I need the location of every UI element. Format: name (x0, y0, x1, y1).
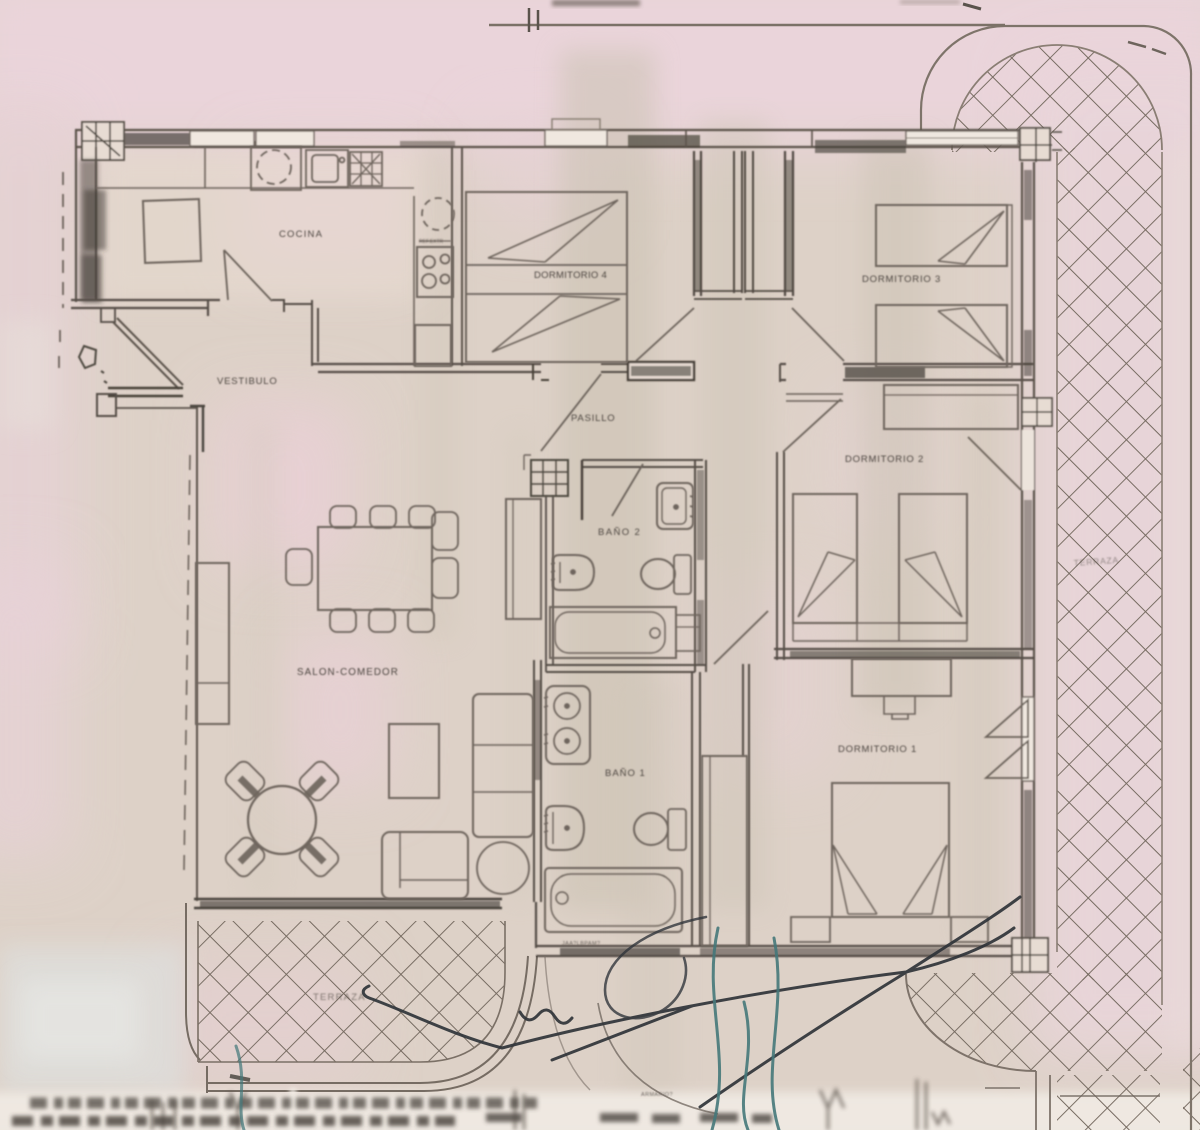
svg-text:SALON-COMEDOR: SALON-COMEDOR (297, 667, 399, 678)
svg-text:DORMITORIO 2: DORMITORIO 2 (845, 454, 924, 465)
svg-text:DORMITORIO 3: DORMITORIO 3 (862, 274, 941, 285)
svg-text:VESTIBULO: VESTIBULO (217, 376, 278, 387)
svg-text:JAA?LBPAM?: JAA?LBPAM? (562, 941, 600, 947)
svg-text:TERRAZA: TERRAZA (313, 992, 366, 1003)
svg-text:COCINA: COCINA (279, 229, 323, 240)
svg-text:BAÑO 2: BAÑO 2 (598, 527, 641, 538)
svg-text:BAÑO 1: BAÑO 1 (605, 768, 646, 779)
svg-text:DORMITORIO 4: DORMITORIO 4 (534, 270, 607, 281)
svg-text:PASILLO: PASILLO (571, 413, 616, 424)
svg-text:REF.EXTR: REF.EXTR (419, 239, 444, 245)
svg-text:DORMITORIO 1: DORMITORIO 1 (838, 744, 917, 755)
